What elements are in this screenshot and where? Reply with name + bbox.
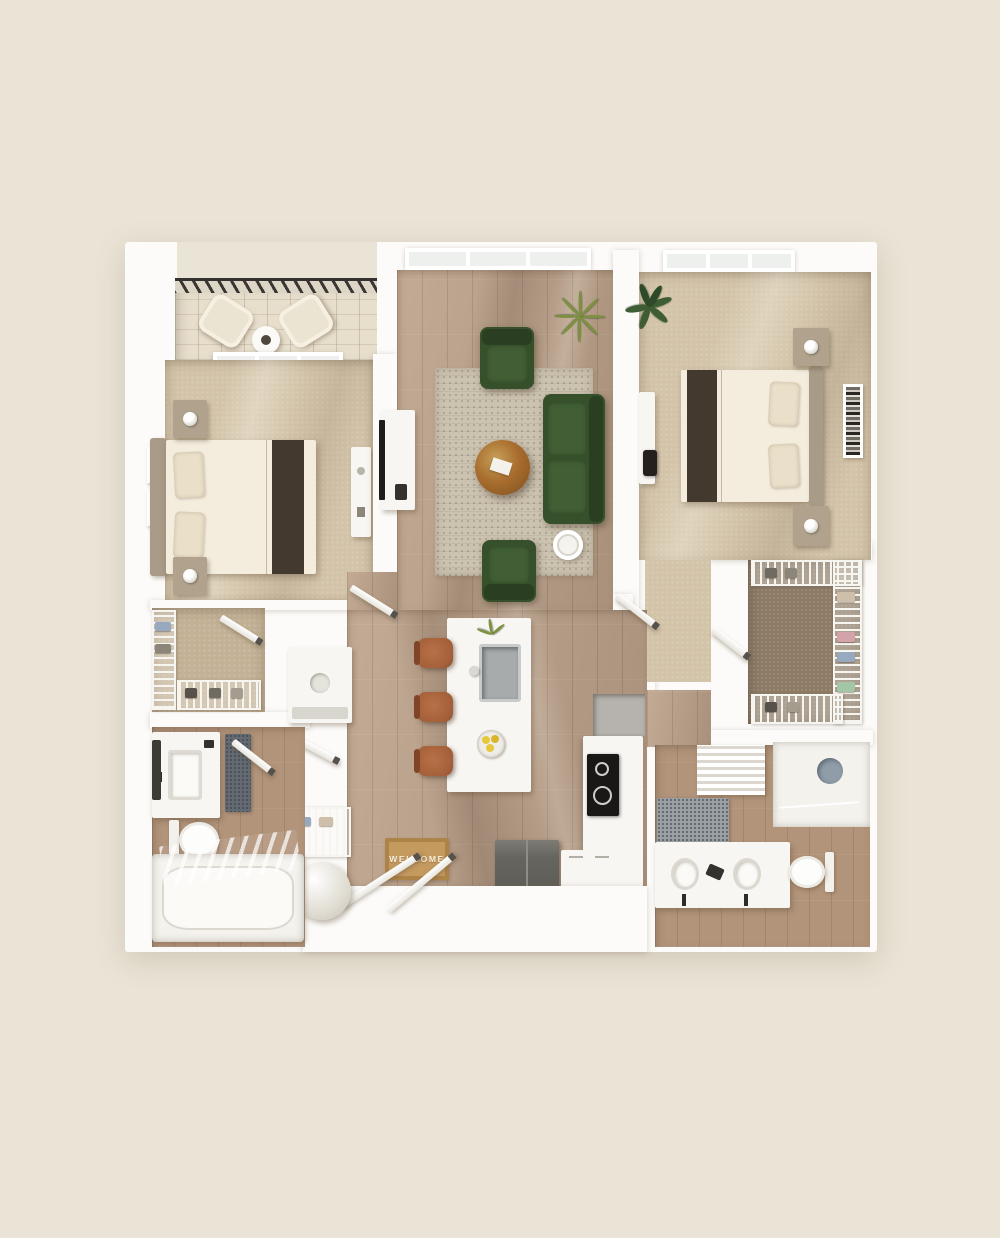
shoes	[185, 688, 197, 698]
bath-right-hall-floor	[647, 690, 711, 747]
green-sofa	[543, 394, 605, 524]
wall-art-frame	[843, 384, 863, 458]
vanity-decor	[204, 740, 214, 748]
table-lamp	[183, 412, 197, 426]
vanity-sink	[168, 750, 202, 800]
burner	[593, 786, 612, 805]
bedroom-right-window	[663, 250, 795, 272]
nightstand	[173, 557, 207, 595]
duvet-fold	[266, 440, 267, 574]
table-lamp	[183, 569, 197, 583]
faucet	[682, 894, 686, 906]
pillow	[173, 511, 205, 559]
pillow	[768, 443, 800, 489]
vanity-sink	[671, 858, 699, 890]
living-room-window	[405, 248, 591, 270]
faucet	[469, 666, 479, 676]
cabinet-handle	[569, 856, 583, 858]
pillow	[173, 451, 205, 499]
flower-vase	[481, 620, 503, 646]
hanging-towel	[152, 740, 161, 800]
folded-clothes	[155, 644, 171, 653]
faucet	[744, 894, 748, 906]
walk-in-shower	[773, 742, 870, 827]
folded-clothes	[837, 652, 855, 662]
double-vanity	[655, 842, 790, 908]
tv-console	[381, 410, 415, 510]
bed-right	[681, 370, 809, 502]
shoes	[785, 568, 797, 578]
counter-appliance-nook	[593, 694, 645, 736]
toilet	[789, 856, 825, 888]
sofa-back	[589, 396, 603, 522]
linen-shelves	[697, 745, 765, 795]
nightstand	[793, 328, 829, 366]
shoes	[787, 702, 799, 712]
toilet-tank	[825, 852, 834, 892]
vanity-tray	[705, 863, 724, 880]
bar-stool	[417, 746, 453, 776]
folded-clothes	[155, 622, 171, 631]
shoes	[209, 688, 221, 698]
shoes	[765, 702, 777, 712]
shoes	[231, 688, 243, 698]
burner	[595, 762, 609, 776]
bed-left	[166, 440, 316, 574]
dresser	[351, 447, 371, 537]
appliance-door	[310, 673, 330, 693]
console-decor	[395, 484, 407, 500]
table-lamp	[804, 340, 818, 354]
sofa-cushion	[547, 402, 587, 456]
closet-right-door	[711, 627, 752, 661]
folded-clothes	[837, 632, 855, 642]
wall	[150, 712, 310, 728]
screenshot-canvas: { "scene": { "subject": "3D rendered two…	[0, 0, 1000, 1238]
folded-clothes	[837, 682, 855, 692]
stored-items	[319, 817, 333, 826]
outdoor-area	[177, 242, 377, 280]
armchair-cushion	[488, 546, 530, 584]
armchair-back	[484, 584, 534, 600]
bar-stool	[417, 638, 453, 668]
desk-chair	[643, 450, 657, 476]
bed-headboard	[150, 438, 166, 576]
nightstand	[793, 506, 829, 546]
cabinet-handle	[595, 856, 609, 858]
tv-screen	[379, 420, 385, 500]
bed-runner	[687, 370, 717, 502]
patio-bowl	[261, 335, 271, 345]
green-armchair-bottom	[482, 540, 536, 602]
pillow	[768, 381, 800, 427]
bed-runner	[272, 440, 304, 574]
vanity-sink	[733, 858, 761, 890]
green-armchair-top	[480, 327, 534, 389]
armchair-back	[482, 329, 532, 345]
island-sink	[479, 644, 521, 702]
appliance-front	[292, 707, 348, 719]
patio-table	[252, 326, 280, 354]
side-table	[553, 530, 583, 560]
washer-dryer-stack	[288, 647, 352, 723]
bed-headboard	[809, 366, 823, 506]
vanity-left	[152, 732, 220, 818]
kitchen-island	[447, 618, 531, 792]
shower-glass	[779, 801, 859, 809]
nightstand	[173, 400, 207, 438]
duvet-fold	[721, 370, 722, 502]
lemon-bowl	[477, 730, 505, 758]
potted-plant-palm	[557, 292, 603, 338]
sofa-cushion	[547, 460, 587, 514]
floor-plan-render: WELCOME	[125, 242, 877, 952]
folded-clothes	[837, 592, 855, 602]
shower-drain	[817, 758, 843, 784]
table-lamp	[804, 519, 818, 533]
armchair-cushion	[486, 345, 528, 383]
cooktop	[587, 754, 619, 816]
potted-plant-rubber	[623, 278, 675, 328]
coffee-table	[475, 440, 530, 495]
magazine	[489, 457, 512, 476]
bar-stool	[417, 692, 453, 722]
dresser-decor	[357, 507, 365, 517]
dresser-decor	[357, 467, 365, 475]
shoes	[765, 568, 777, 578]
